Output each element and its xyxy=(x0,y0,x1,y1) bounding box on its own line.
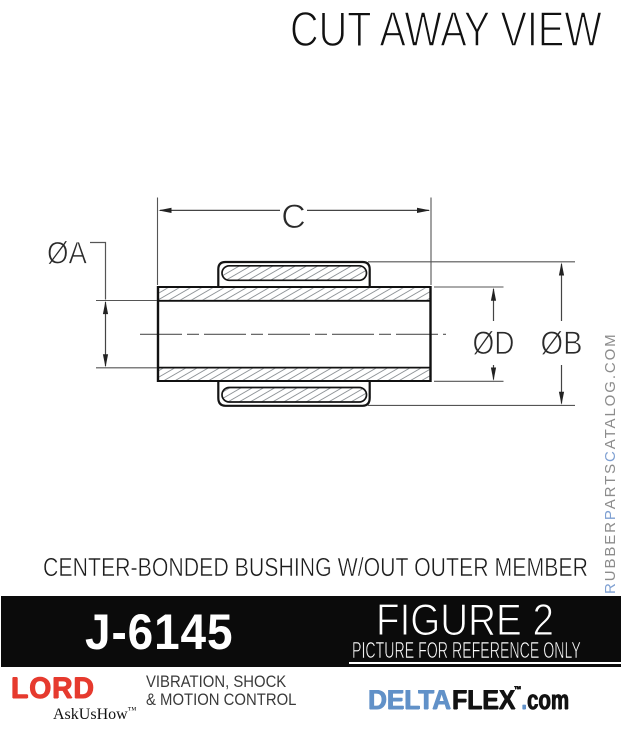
svg-text:ØD: ØD xyxy=(473,325,515,361)
svg-text:ØA: ØA xyxy=(47,235,87,271)
svg-text:ØB: ØB xyxy=(541,325,583,361)
svg-text:C: C xyxy=(281,198,306,236)
